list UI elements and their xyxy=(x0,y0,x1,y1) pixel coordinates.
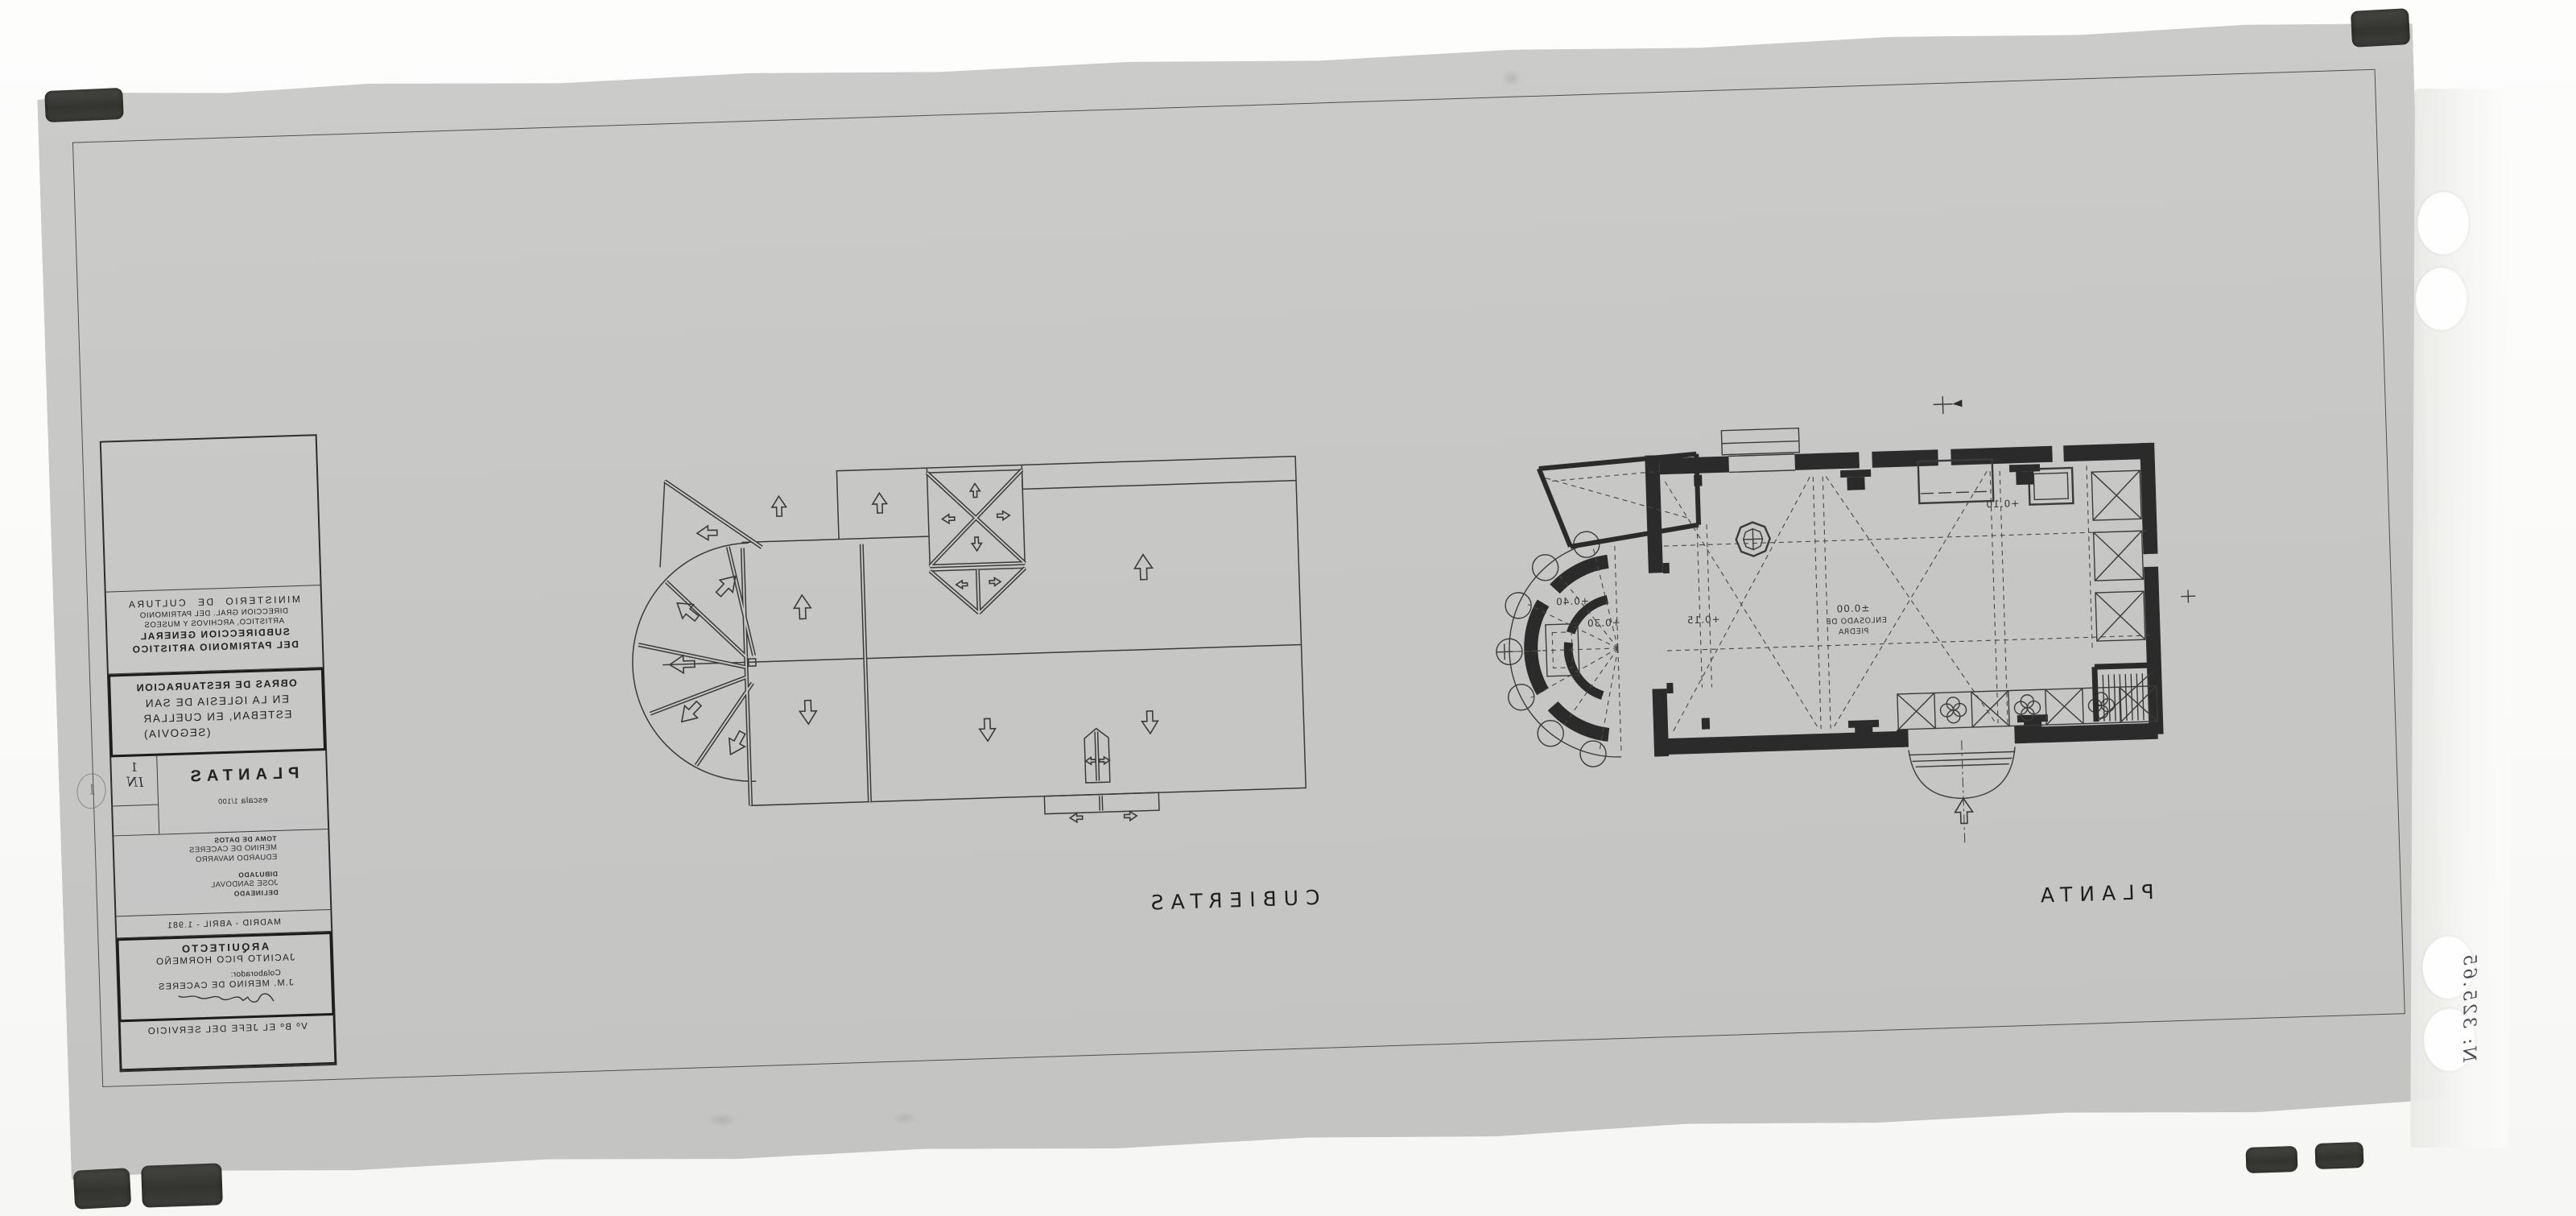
mounting-clip-bottom-left-1 xyxy=(73,1168,131,1210)
right-aisle-bays xyxy=(2091,470,2145,641)
pencil-smudge xyxy=(706,1112,739,1127)
title-block-content: MINISTERIO DE CULTURA DIRECCION GRAL. DE… xyxy=(101,436,336,1070)
margin-number-text: 1 xyxy=(85,774,97,807)
drawing-title-row: PLANTAS escala 1/100 1 IN xyxy=(111,751,328,836)
mounting-clip-bottom-right-2 xyxy=(2314,1142,2363,1169)
sheet-number-cell: 1 IN xyxy=(111,756,159,836)
architect-box: ARQUITECTO JACINTO PICO HORMEÑO Colabora… xyxy=(116,932,334,1022)
apse-walls xyxy=(1525,455,1675,760)
stairs xyxy=(2095,665,2156,722)
mounting-clip-top-right xyxy=(2351,8,2410,48)
level-sacristy: +0.10 xyxy=(1985,498,2019,510)
nave-walls xyxy=(1653,443,2159,755)
ministry-header: MINISTERIO DE CULTURA DIRECCION GRAL. DE… xyxy=(106,585,323,674)
approval-cell: Vº Bº EL JEFE DEL SERVICIO xyxy=(119,1015,336,1070)
scale-label: escala xyxy=(241,795,268,805)
porch-and-font xyxy=(1721,428,1802,557)
punch-hole xyxy=(2416,267,2467,330)
sheet-number-empty xyxy=(113,805,159,836)
project-box: OBRAS DE RESTAURACION EN LA IGLESIA DE S… xyxy=(108,668,326,757)
pencil-smudge xyxy=(1501,68,1522,87)
mounting-clip-bottom-right-1 xyxy=(2245,1146,2297,1173)
roof-plan xyxy=(624,408,1346,870)
level-apse-lower: +0.30 xyxy=(1587,617,1620,629)
mounting-clip-bottom-left-2 xyxy=(141,1163,223,1207)
credits-cell: TOMA DE DATOS MERINO DE CACERES EDUARDO … xyxy=(114,829,330,916)
punch-hole xyxy=(2417,192,2469,254)
drawing-title: PLANTAS xyxy=(158,763,327,788)
drawing-title-cell: PLANTAS escala 1/100 xyxy=(157,751,328,834)
floor-plan-caption-text: PLANTA xyxy=(2033,880,2155,908)
pencil-smudge xyxy=(891,1111,919,1125)
sheet-number-box: 1 IN xyxy=(111,756,158,807)
level-nave: ±0.00 xyxy=(1835,602,1869,614)
nave-note-2: PIEDRA xyxy=(1838,627,1869,637)
handwritten-archive-number: N: 325.65 xyxy=(2458,952,2479,1062)
mounting-clip-top-left xyxy=(44,88,124,122)
signature-scribble xyxy=(174,989,279,1010)
entrance xyxy=(1909,738,2018,845)
sheet-number-note: IN xyxy=(112,774,158,791)
drawing-sheet: 1 MINISTERIO DE CULTURA DIRECCION GRAL. … xyxy=(37,18,2446,1181)
roof-plan-drawing xyxy=(624,408,1346,870)
scale-line: escala 1/100 xyxy=(159,793,327,809)
title-block: MINISTERIO DE CULTURA DIRECCION GRAL. DE… xyxy=(100,434,337,1072)
vault-dashed-lines xyxy=(1662,464,2156,734)
floor-plan: +0.40 +0.30 +0.15 ±0.00 ENLOSADO DE PIED… xyxy=(1485,388,2207,862)
level-presbytery: +0.15 xyxy=(1686,614,1720,626)
title-block-empty-box xyxy=(101,436,320,592)
level-apse-upper: +0.40 xyxy=(1555,595,1589,607)
punched-sleeve-strip: N: 325.65 xyxy=(2410,89,2513,1148)
scale-value: 1/100 xyxy=(217,797,237,806)
scan-background: 1 MINISTERIO DE CULTURA DIRECCION GRAL. … xyxy=(0,0,2576,1216)
